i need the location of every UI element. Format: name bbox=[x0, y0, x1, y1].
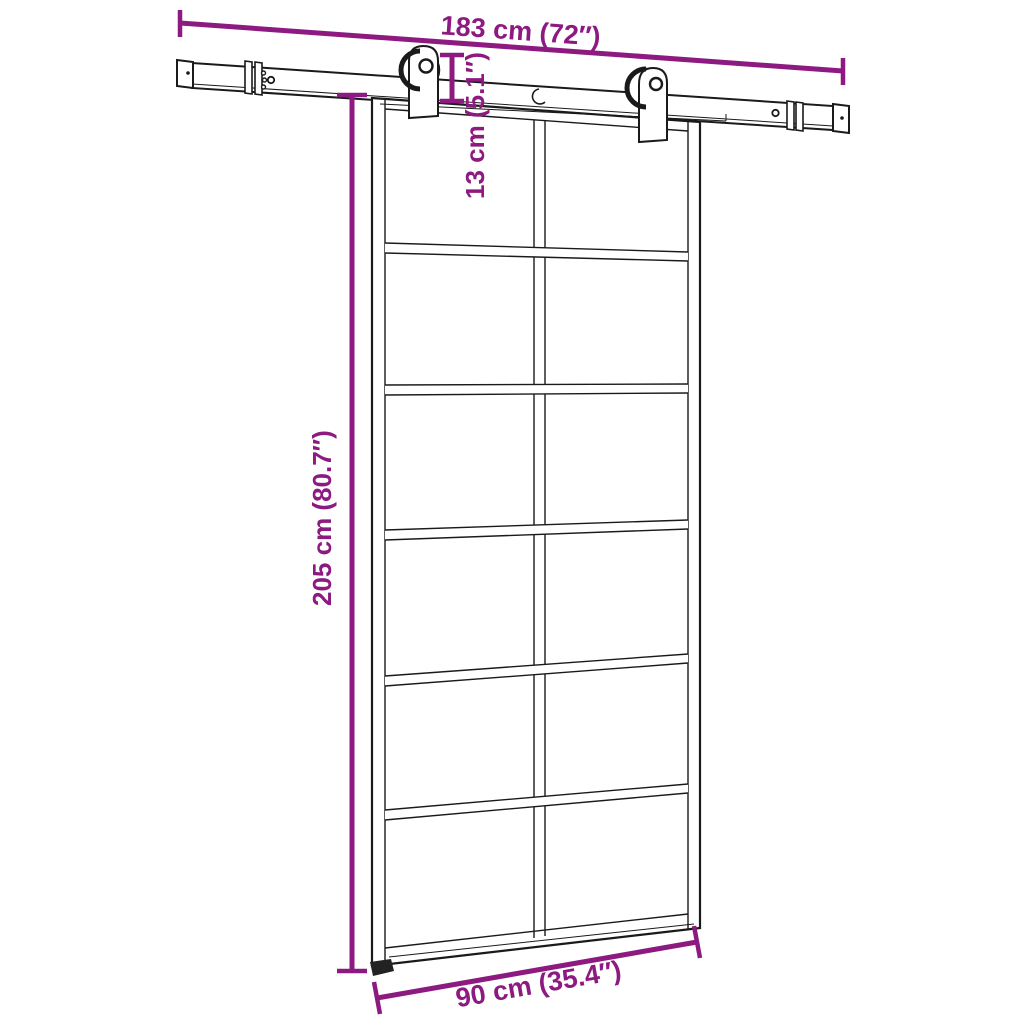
hanger-bolt-right bbox=[650, 78, 662, 90]
sliding-door-dimension-diagram: 183 cm (72″) 13 cm (5.1″) 205 cm (80.7″)… bbox=[0, 0, 1024, 1024]
door-height-label: 205 cm (80.7″) bbox=[307, 430, 337, 606]
dimension-door-height: 205 cm (80.7″) bbox=[307, 95, 367, 971]
end-cap-screw-left bbox=[186, 71, 190, 75]
bracket-hole-right bbox=[772, 110, 778, 116]
dim-tick-width-right bbox=[694, 926, 700, 958]
diagram-canvas: 183 cm (72″) 13 cm (5.1″) 205 cm (80.7″)… bbox=[0, 0, 1024, 1024]
end-cap-screw-right bbox=[840, 116, 844, 120]
door-leaf bbox=[370, 98, 726, 976]
bracket-hole-left bbox=[268, 77, 274, 83]
dim-tick-width-left bbox=[374, 982, 380, 1014]
hanger-strap-left bbox=[409, 46, 438, 118]
hanger-bolt-left bbox=[420, 60, 433, 73]
floor-guide bbox=[370, 959, 394, 976]
drop-height-label: 13 cm (5.1″) bbox=[460, 52, 490, 199]
door-width-label: 90 cm (35.4″) bbox=[453, 955, 623, 1013]
rail-end-cap-left bbox=[177, 60, 193, 88]
